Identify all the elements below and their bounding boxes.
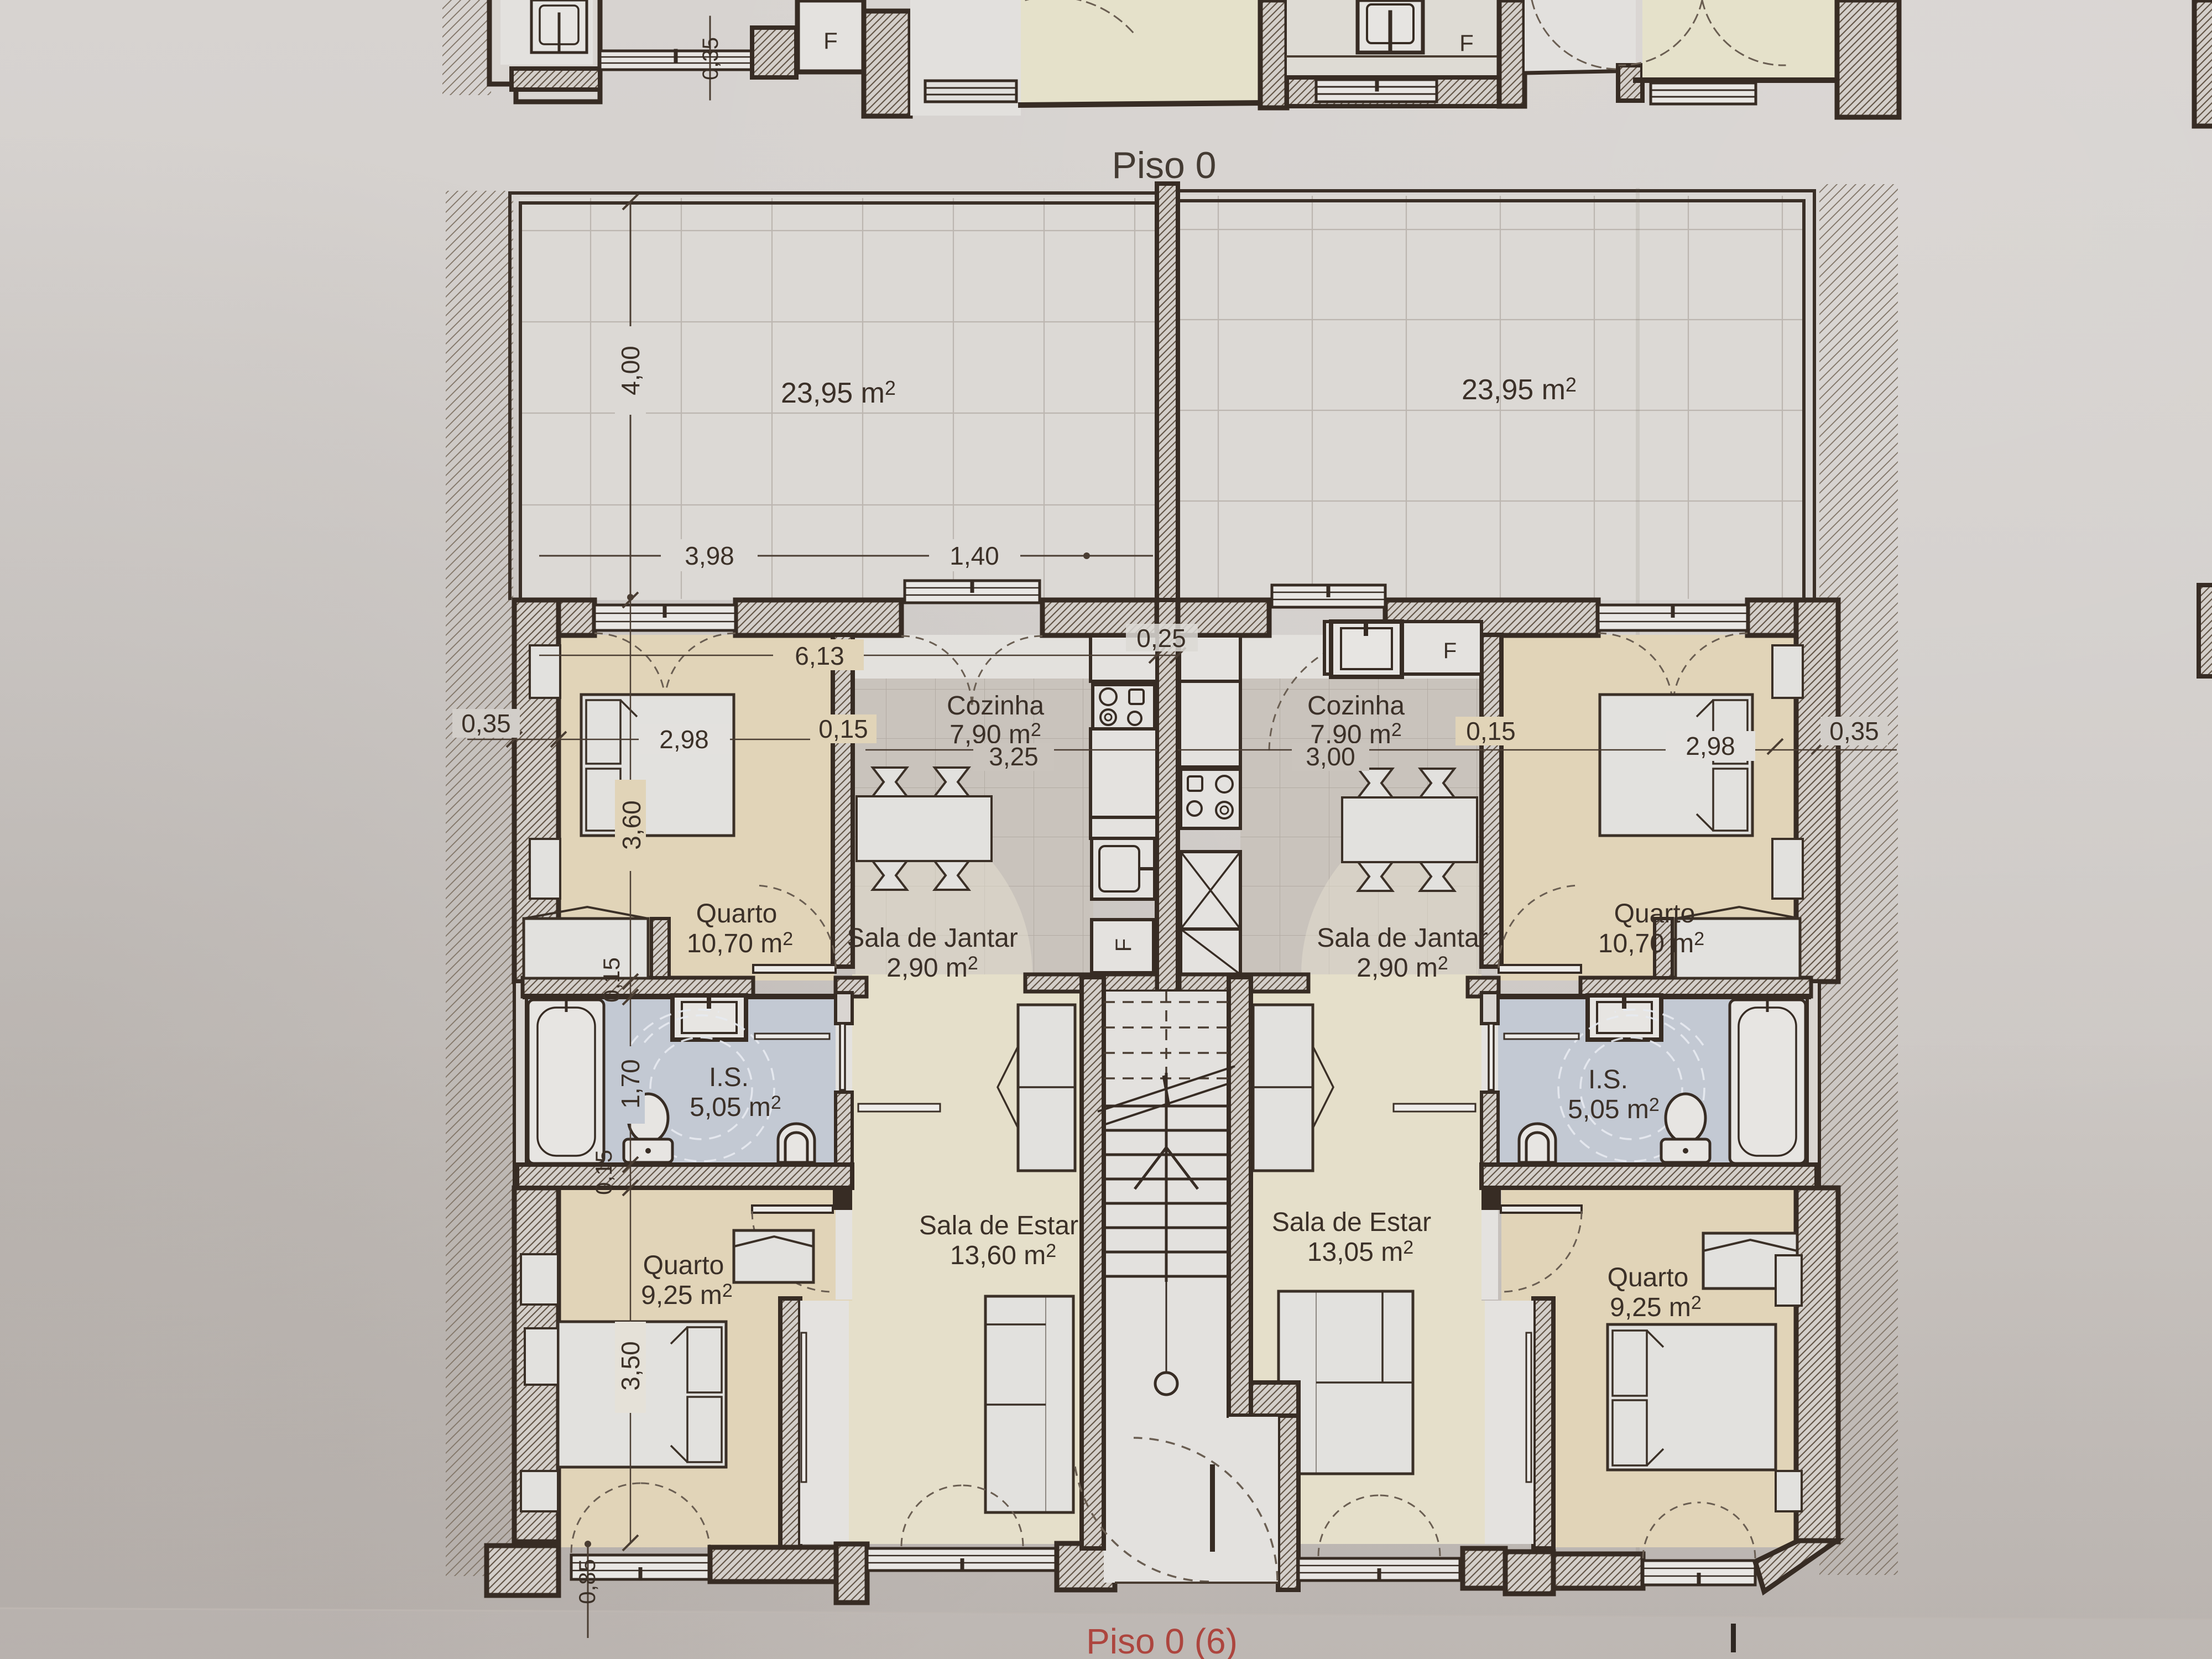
svg-text:F: F <box>823 28 838 54</box>
svg-text:I.S.: I.S. <box>709 1063 749 1092</box>
svg-text:F: F <box>1459 30 1474 56</box>
svg-text:13,05 m2: 13,05 m2 <box>1307 1237 1413 1267</box>
svg-text:0,15: 0,15 <box>1466 717 1516 745</box>
svg-text:23,95 m2: 23,95 m2 <box>1462 373 1577 406</box>
svg-text:0,35: 0,35 <box>461 709 511 738</box>
svg-text:Piso 0: Piso 0 <box>1112 144 1217 186</box>
svg-text:2,98: 2,98 <box>1686 732 1735 760</box>
svg-text:Quarto: Quarto <box>643 1251 724 1280</box>
svg-text:Sala de Estar: Sala de Estar <box>919 1211 1078 1240</box>
svg-text:Sala de Jantar: Sala de Jantar <box>1317 924 1488 953</box>
svg-text:Cozinha: Cozinha <box>1307 691 1405 721</box>
svg-text:9,25 m2: 9,25 m2 <box>1610 1292 1702 1322</box>
svg-text:Cozinha: Cozinha <box>947 691 1044 721</box>
svg-text:2,90 m2: 2,90 m2 <box>1357 953 1448 983</box>
svg-text:3,98: 3,98 <box>685 541 734 570</box>
svg-text:5,05 m2: 5,05 m2 <box>690 1092 781 1122</box>
svg-text:Sala de Estar: Sala de Estar <box>1272 1208 1431 1237</box>
svg-text:0,35: 0,35 <box>1829 717 1879 745</box>
svg-text:13,60 m2: 13,60 m2 <box>950 1240 1056 1270</box>
svg-text:5,05 m2: 5,05 m2 <box>1568 1094 1660 1124</box>
svg-text:F: F <box>1112 938 1136 952</box>
svg-text:1,70: 1,70 <box>616 1059 645 1109</box>
svg-text:0,15: 0,15 <box>591 1150 617 1195</box>
svg-text:Sala de Jantar: Sala de Jantar <box>847 924 1018 953</box>
svg-text:10,70 m2: 10,70 m2 <box>687 928 793 958</box>
svg-text:Quarto: Quarto <box>1614 899 1695 928</box>
svg-text:2,90 m2: 2,90 m2 <box>886 953 978 983</box>
svg-text:9,25 m2: 9,25 m2 <box>641 1280 733 1310</box>
svg-text:3,60: 3,60 <box>617 800 646 850</box>
svg-text:Piso 0 (6): Piso 0 (6) <box>1086 1621 1238 1659</box>
svg-text:0,15: 0,15 <box>598 957 624 1003</box>
svg-text:23,95 m2: 23,95 m2 <box>781 377 896 409</box>
svg-text:Quarto: Quarto <box>696 899 778 928</box>
svg-text:0,15: 0,15 <box>818 714 868 743</box>
svg-text:6,13: 6,13 <box>795 641 844 670</box>
svg-text:I.S.: I.S. <box>1588 1065 1628 1094</box>
svg-text:0,85: 0,85 <box>574 1559 600 1604</box>
svg-text:0,35: 0,35 <box>698 37 723 80</box>
svg-text:Quarto: Quarto <box>1608 1263 1689 1292</box>
svg-text:3,00: 3,00 <box>1306 742 1355 771</box>
svg-text:10,70 m2: 10,70 m2 <box>1598 928 1704 958</box>
svg-text:0,25: 0,25 <box>1136 624 1186 653</box>
svg-text:3,50: 3,50 <box>616 1341 645 1391</box>
svg-text:4,00: 4,00 <box>616 346 645 395</box>
svg-text:3,25: 3,25 <box>989 742 1039 771</box>
svg-text:F: F <box>1443 639 1457 663</box>
svg-text:1,40: 1,40 <box>950 541 999 570</box>
svg-text:2,98: 2,98 <box>659 725 709 754</box>
